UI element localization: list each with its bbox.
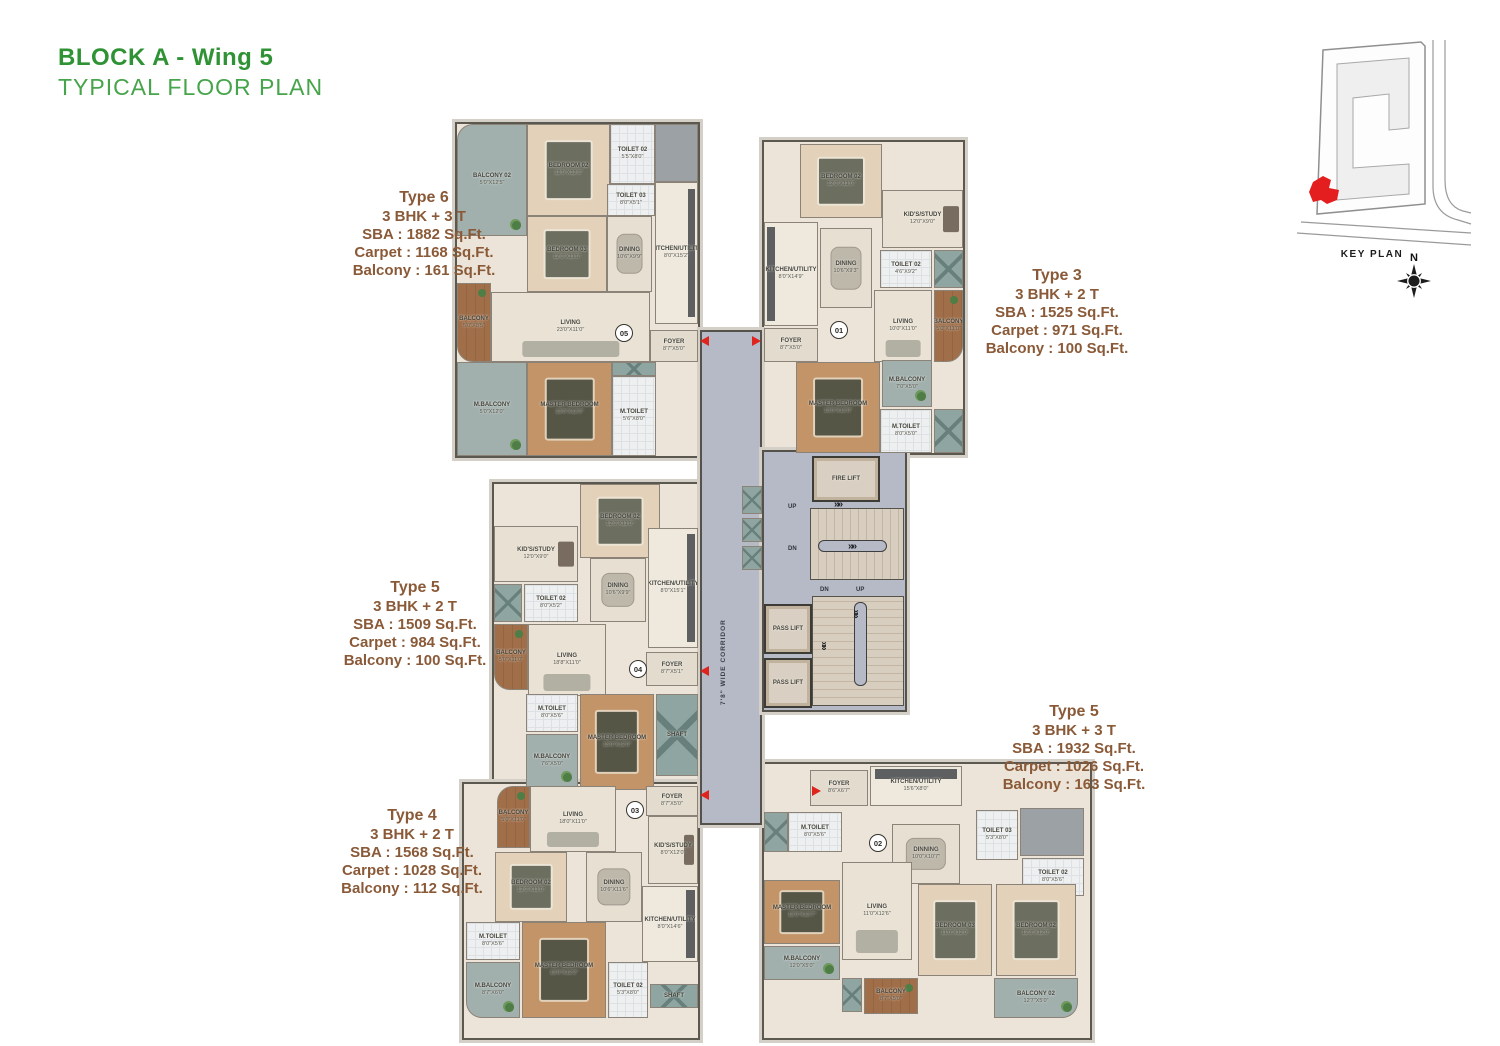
stair-arrow-icon: »» <box>834 500 841 510</box>
stair-arrow-icon: »» <box>848 542 855 552</box>
type-carpet: Carpet : 1168 Sq.Ft. <box>312 244 536 262</box>
u02-toilet-03: TOILET 035'3"X8'0" <box>976 810 1018 860</box>
fire-lift-label: FIRE LIFT <box>832 476 860 483</box>
u04-kitchen: KITCHEN/UTILITY8'0"X15'1" <box>648 528 698 648</box>
u04-dining: DINING10'6"X9'9" <box>590 558 646 622</box>
u05-shaft <box>612 362 656 376</box>
u02-balcony: BALCONY8'7"X5'0" <box>864 978 918 1014</box>
room-dims-label: 12'3"X12'0" <box>1022 930 1050 936</box>
type-config: 3 BHK + 2 T <box>303 598 527 616</box>
u05-utility-block <box>655 124 698 182</box>
u01-bedroom-02: BEDROOM 0212'0"X11'0" <box>800 144 882 218</box>
annotation-type-6: Type 6 3 BHK + 3 T SBA : 1882 Sq.Ft. Car… <box>312 188 536 281</box>
u05-master-bedroom: MASTER BEDROOM13'0"X12'0" <box>527 362 612 456</box>
type-name: Type 5 <box>303 578 527 598</box>
room-dims-label: 12'0"X11'0" <box>553 254 581 260</box>
u02-bedroom-02: BEDROOM 0212'3"X12'0" <box>996 884 1076 976</box>
u05-bedroom-03: BEDROOM 0312'0"X11'0" <box>527 216 607 292</box>
room-dims-label: 8'0"X15'2" <box>664 253 689 259</box>
stair-arrow-icon: »» <box>851 609 861 616</box>
annotation-type-3: Type 3 3 BHK + 2 T SBA : 1525 Sq.Ft. Car… <box>945 266 1169 359</box>
type-carpet: Carpet : 984 Sq.Ft. <box>303 634 527 652</box>
room-dims-label: 8'7"X5'0" <box>880 996 902 1002</box>
room-dims-label: 8'0"X5'0" <box>895 431 917 437</box>
room-dims-label: 8'7"X6'0" <box>482 990 504 996</box>
corridor-label: 7'8" WIDE CORRIDOR <box>720 595 727 705</box>
room-dims-label: 5'3"X8'0" <box>986 835 1008 841</box>
type-sba: SBA : 1525 Sq.Ft. <box>945 304 1169 322</box>
pass-lift-label: PASS LIFT <box>773 680 803 687</box>
fire-lift: FIRE LIFT <box>812 456 880 502</box>
page-subtitle: TYPICAL FLOOR PLAN <box>58 74 323 101</box>
type-sba: SBA : 1932 Sq.Ft. <box>962 740 1186 758</box>
type-sba: SBA : 1882 Sq.Ft. <box>312 226 536 244</box>
annotation-type-4: Type 4 3 BHK + 2 T SBA : 1568 Sq.Ft. Car… <box>300 806 524 899</box>
room-dims-label: 8'0"X5'1" <box>620 200 642 206</box>
stairs-up-label: UP <box>856 587 864 593</box>
room-dims-label: 10'0"X10'7" <box>912 854 940 860</box>
room-name-label: BALCONY <box>459 316 489 323</box>
core-shaft-3 <box>742 546 762 570</box>
u01-m-toilet: M.TOILET8'0"X5'0" <box>880 409 932 453</box>
key-plan-map <box>1293 36 1473 248</box>
stairs-dn-label: DN <box>820 587 829 593</box>
stair-arrow-icon: »» <box>819 641 829 648</box>
u05-kitchen: KITCHEN/UTILITY8'0"X15'2" <box>655 182 698 324</box>
u04-m-balcony: M.BALCONY7'6"X5'0" <box>526 734 578 788</box>
room-dims-label: 5'0"X12'5" <box>480 180 505 186</box>
room-dims-label: 8'7"X5'0" <box>663 346 685 352</box>
room-dims-label: 11'0"X12'0" <box>941 930 969 936</box>
type-config: 3 BHK + 3 T <box>962 722 1186 740</box>
room-dims-label: 12'0"X11'0" <box>827 181 855 187</box>
room-dims-label: 10'6"X9'9" <box>617 254 642 260</box>
room-dims-label: 8'7"X5'0" <box>780 345 802 351</box>
pass-lift-2: PASS LIFT <box>764 658 812 708</box>
type-name: Type 6 <box>312 188 536 208</box>
u05-balcony: BALCONY5'0"X8'5" <box>457 283 491 362</box>
type-config: 3 BHK + 3 T <box>312 208 536 226</box>
room-dims-label: 12'0"X12'0" <box>554 170 582 176</box>
u04-living: LIVING18'8"X11'0" <box>528 624 606 696</box>
stairs-dn-label: DN <box>788 546 797 552</box>
u01-toilet-02: TOILET 024'6"X9'2" <box>880 250 932 288</box>
room-dims-label: 8'0"X15'1" <box>661 588 686 594</box>
u02-bedroom-03: BEDROOM 0311'0"X12'0" <box>918 884 992 976</box>
u04-master-bedroom: MASTER BEDROOM13'0"X12'0" <box>580 694 654 790</box>
room-dims-label: 12'7"X5'0" <box>1024 998 1049 1004</box>
u04-foyer: FOYER8'7"X5'1" <box>646 652 698 686</box>
compass-rose-icon <box>1397 264 1431 298</box>
unit-number-05: 05 <box>615 324 633 342</box>
room-dims-label: 5'0"X11'0" <box>499 657 524 663</box>
type-name: Type 5 <box>962 702 1186 722</box>
room-dims-label: 15'6"X8'0" <box>904 786 929 792</box>
entry-arrow-icon <box>700 790 709 800</box>
room-dims-label: 8'7"X5'1" <box>661 669 683 675</box>
road-line <box>1433 40 1471 224</box>
u03-dining: DINING10'6"X11'6" <box>586 852 642 922</box>
room-dims-label: 8'0"X12'0" <box>661 850 686 856</box>
type-sba: SBA : 1509 Sq.Ft. <box>303 616 527 634</box>
room-dims-label: 7'6"X5'0" <box>541 761 563 767</box>
type-name: Type 4 <box>300 806 524 826</box>
u02-m-balcony: M.BALCONY12'0"X5'0" <box>764 946 840 980</box>
room-dims-label: 18'8"X11'0" <box>553 660 581 666</box>
road-line <box>1297 233 1471 245</box>
room-dims-label: 12'0"X11'0" <box>606 521 634 527</box>
type-name: Type 3 <box>945 266 1169 286</box>
annotation-type-5-right: Type 5 3 BHK + 3 T SBA : 1932 Sq.Ft. Car… <box>962 702 1186 795</box>
room-dims-label: 4'6"X9'2" <box>895 269 917 275</box>
room-dims-label: 10'0"X11'0" <box>889 326 917 332</box>
u05-toilet-02: TOILET 025'5"X8'0" <box>610 124 655 184</box>
type-carpet: Carpet : 971 Sq.Ft. <box>945 322 1169 340</box>
u03-kids-study: KID'S/STUDY8'0"X12'0" <box>648 816 698 884</box>
u05-dining: DINING10'6"X9'9" <box>607 216 652 292</box>
room-dims-label: 8'6"X6'7" <box>828 788 850 794</box>
annotation-type-5-left: Type 5 3 BHK + 2 T SBA : 1509 Sq.Ft. Car… <box>303 578 527 671</box>
room-dims-label: 8'0"X5'6" <box>482 941 504 947</box>
entry-arrow-icon <box>700 336 709 346</box>
u05-toilet-03: TOILET 038'0"X5'1" <box>607 184 655 216</box>
type-balcony: Balcony : 112 Sq.Ft. <box>300 880 524 898</box>
core-shaft-1 <box>742 486 762 514</box>
u03-kitchen: KITCHEN/UTILITY8'0"X14'6" <box>642 886 698 962</box>
room-dims-label: 5'3"X8'0" <box>617 990 639 996</box>
page-title: BLOCK A - Wing 5 <box>58 44 273 72</box>
compass-icon: N <box>1396 252 1432 303</box>
u05-m-balcony: M.BALCONY5'0"X12'0" <box>457 362 527 456</box>
u03-foyer: FOYER8'7"X5'0" <box>646 786 698 816</box>
stairs-up-label: UP <box>788 504 796 510</box>
room-dims-label: 5'0"X11'0" <box>936 326 961 332</box>
room-dims-label: 13'0"X12'2" <box>550 970 578 976</box>
u01-living: LIVING10'0"X11'0" <box>874 290 932 362</box>
u03-m-balcony: M.BALCONY8'7"X6'0" <box>466 962 520 1018</box>
type-balcony: Balcony : 100 Sq.Ft. <box>303 652 527 670</box>
room-dims-label: 8'0"X5'2" <box>540 603 562 609</box>
room-dims-label: 12'0"X11'0" <box>517 887 545 893</box>
corridor <box>700 330 762 825</box>
u05-m-toilet: M.TOILET5'6"X8'0" <box>612 376 656 456</box>
u02-balcony-02: BALCONY 0212'7"X5'0" <box>994 978 1078 1018</box>
u04-m-toilet: M.TOILET8'0"X5'6" <box>526 694 578 732</box>
core-shaft-2 <box>742 518 762 542</box>
unit-number-01: 01 <box>830 321 848 339</box>
unit-number-02: 02 <box>869 834 887 852</box>
u02-m-toilet: M.TOILET8'0"X5'6" <box>788 812 842 852</box>
u01-dining: DINING10'6"X9'3" <box>820 228 872 308</box>
room-dims-label: 5'5"X8'0" <box>622 154 644 160</box>
room-dims-label: 12'0"X9'0" <box>910 219 935 225</box>
room-dims-label: 12'0"X9'0" <box>524 554 549 560</box>
u01-master-bedroom: MASTER BEDROOM13'0"X12'0" <box>796 362 880 453</box>
u01-kids-study: KID'S/STUDY12'0"X9'0" <box>882 190 963 248</box>
u04-kids-study: KID'S/STUDY12'0"X9'0" <box>494 526 578 582</box>
u02-shaft-2 <box>842 978 862 1012</box>
u05-bedroom-02: BEDROOM 0212'0"X12'0" <box>527 124 610 216</box>
room-name-label: M.BALCONY <box>889 377 925 384</box>
pass-lift-1: PASS LIFT <box>764 604 812 654</box>
type-carpet: Carpet : 1028 Sq.Ft. <box>300 862 524 880</box>
room-dims-label: 5'0"X11'0" <box>501 817 526 823</box>
u02-utility-block <box>1020 808 1084 856</box>
room-dims-label: 23'0"X11'0" <box>557 327 585 333</box>
u03-m-toilet: M.TOILET8'0"X5'6" <box>466 922 520 960</box>
entry-arrow-icon <box>700 666 709 676</box>
room-dims-label: 8'0"X14'6" <box>658 924 683 930</box>
u01-shaft-2 <box>934 409 963 453</box>
u01-m-balcony: M.BALCONY7'0"X5'0" <box>882 360 932 407</box>
room-dims-label: 10'6"X9'3" <box>834 268 859 274</box>
room-dims-label: 8'0"X5'6" <box>804 832 826 838</box>
room-dims-label: 8'0"X14'9" <box>779 274 804 280</box>
type-config: 3 BHK + 2 T <box>945 286 1169 304</box>
compass-north-label: N <box>1396 252 1432 264</box>
entry-arrow-icon <box>812 786 821 796</box>
room-dims-label: 12'0"X5'0" <box>790 963 815 969</box>
entry-arrow-icon <box>752 336 761 346</box>
room-dims-label: 8'0"X5'6" <box>1042 877 1064 883</box>
pass-lift-label: PASS LIFT <box>773 626 803 633</box>
u03-toilet-02: TOILET 025'3"X8'0" <box>608 962 648 1018</box>
room-dims-label: 18'0"X11'0" <box>559 819 587 825</box>
road-line <box>1445 40 1471 213</box>
room-dims-label: 5'6"X8'0" <box>623 416 645 422</box>
u02-shaft <box>764 812 788 852</box>
u03-shaft: SHAFT <box>650 984 698 1008</box>
room-dims-label: 12'0"X13'7" <box>788 912 816 918</box>
room-dims-label: 5'0"X12'0" <box>480 409 505 415</box>
road-line <box>1301 222 1471 233</box>
type-sba: SBA : 1568 Sq.Ft. <box>300 844 524 862</box>
type-balcony: Balcony : 161 Sq.Ft. <box>312 262 536 280</box>
floor-plan-page: BLOCK A - Wing 5 TYPICAL FLOOR PLAN BALC… <box>0 0 1500 1046</box>
type-balcony: Balcony : 100 Sq.Ft. <box>945 340 1169 358</box>
room-dims-label: 8'0"X5'6" <box>541 713 563 719</box>
staircase-1 <box>810 508 904 580</box>
unit-number-03: 03 <box>626 801 644 819</box>
room-name-label: SHAFT <box>664 993 684 1000</box>
room-dims-label: 10'6"X11'6" <box>600 887 628 893</box>
room-dims-label: 13'0"X12'0" <box>555 409 583 415</box>
type-carpet: Carpet : 1026 Sq.Ft. <box>962 758 1186 776</box>
u01-foyer: FOYER8'7"X5'0" <box>764 328 818 362</box>
room-dims-label: 7'0"X5'0" <box>896 384 918 390</box>
u03-living: LIVING18'0"X11'0" <box>530 786 616 852</box>
u03-master-bedroom: MASTER BEDROOM13'0"X12'2" <box>522 922 606 1018</box>
u05-foyer: FOYER8'7"X5'0" <box>650 330 698 362</box>
room-dims-label: 13'0"X12'0" <box>824 408 852 414</box>
room-dims-label: 11'0"X12'6" <box>863 911 891 917</box>
room-dims-label: 8'7"X5'0" <box>661 801 683 807</box>
room-dims-label: 5'0"X8'5" <box>463 323 485 329</box>
u01-kitchen: KITCHEN/UTILITY8'0"X14'9" <box>764 222 818 326</box>
u02-kitchen: KITCHEN/UTILITY15'6"X8'0" <box>870 766 962 806</box>
u04-toilet-02: TOILET 028'0"X5'2" <box>524 584 578 622</box>
u02-master-bedroom: MASTER BEDROOM12'0"X13'7" <box>764 880 840 944</box>
u04-shaft: SHAFT <box>656 694 698 776</box>
room-dims-label: 10'6"X9'9" <box>606 590 631 596</box>
room-name-label: MASTER BEDROOM <box>809 401 867 408</box>
room-name-label: SHAFT <box>667 732 687 739</box>
type-balcony: Balcony : 163 Sq.Ft. <box>962 776 1186 794</box>
room-dims-label: 13'0"X12'0" <box>603 742 631 748</box>
unit-number-04: 04 <box>629 660 647 678</box>
u02-living: LIVING11'0"X12'6" <box>842 862 912 960</box>
type-config: 3 BHK + 2 T <box>300 826 524 844</box>
